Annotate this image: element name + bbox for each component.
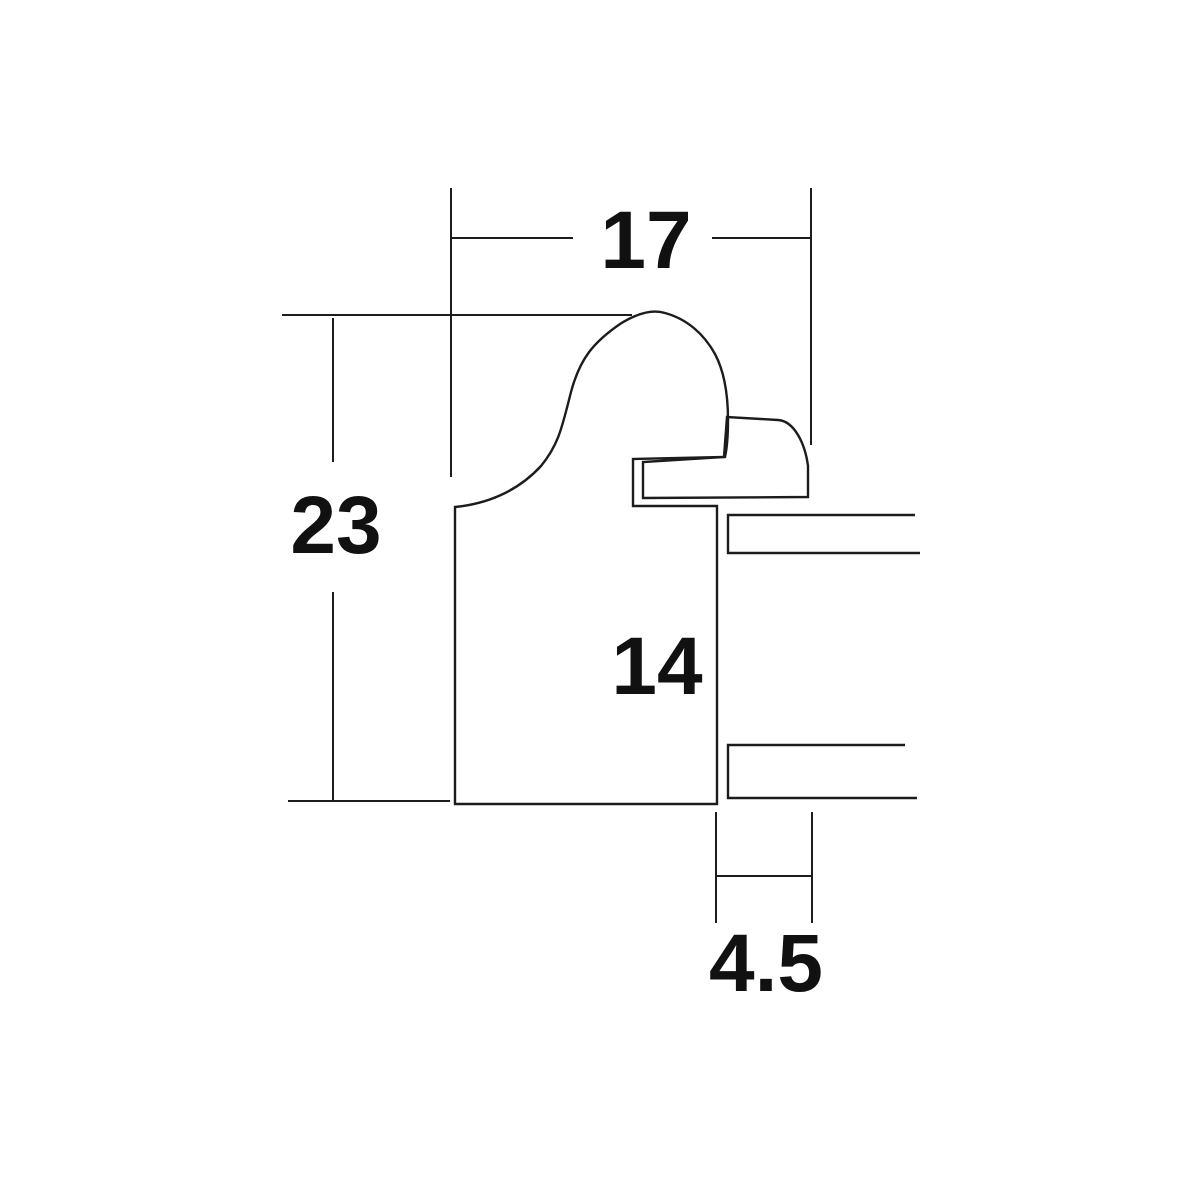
dimension-rabbet-height: 14: [611, 621, 703, 712]
diagram-background: [0, 0, 1200, 1200]
drawing-canvas: 17 23 14 4.5: [0, 0, 1200, 1200]
lip-width-dimension-label: 4.5: [709, 918, 823, 1009]
moulding-cross-section-diagram: 17 23 14 4.5: [0, 0, 1200, 1200]
rabbet-height-label: 14: [611, 621, 703, 712]
height-dimension-label: 23: [290, 480, 381, 571]
width-dimension-label: 17: [600, 195, 691, 286]
